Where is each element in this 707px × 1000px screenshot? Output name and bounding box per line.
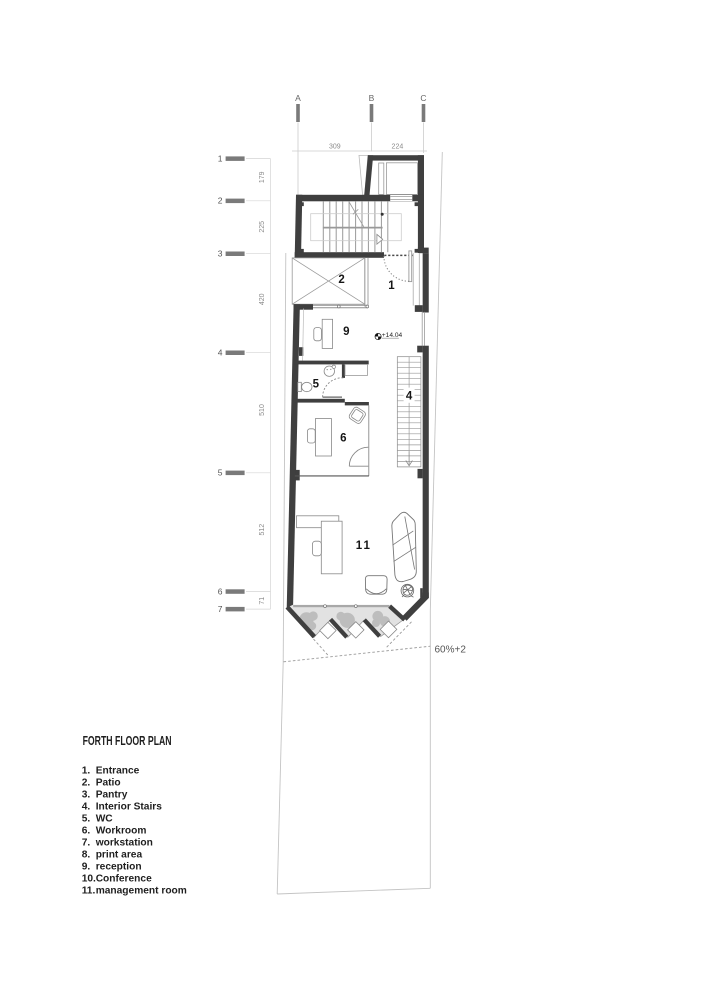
svg-text:71: 71: [259, 597, 266, 605]
svg-text:Workroom: Workroom: [96, 826, 147, 837]
svg-text:225: 225: [259, 221, 266, 233]
svg-text:179: 179: [259, 171, 266, 183]
svg-text:7.: 7.: [82, 838, 91, 849]
svg-text:Interior Stairs: Interior Stairs: [96, 801, 163, 812]
svg-text:Entrance: Entrance: [96, 765, 140, 776]
svg-text:WC: WC: [96, 814, 114, 825]
svg-text:print area: print area: [96, 850, 143, 861]
svg-text:workstation: workstation: [95, 838, 153, 849]
svg-text:8.: 8.: [82, 850, 91, 861]
svg-text:309: 309: [329, 144, 341, 151]
svg-text:512: 512: [259, 524, 266, 536]
svg-text:420: 420: [259, 293, 266, 305]
svg-text:3: 3: [218, 249, 223, 259]
svg-text:9: 9: [343, 326, 349, 338]
svg-text:2: 2: [218, 196, 223, 206]
svg-text:5: 5: [313, 379, 320, 391]
svg-text:FORTH FLOOR PLAN: FORTH FLOOR PLAN: [83, 733, 172, 748]
svg-text:10.: 10.: [82, 874, 96, 885]
svg-text:1: 1: [218, 153, 223, 163]
svg-text:4: 4: [218, 348, 223, 358]
svg-text:Patio: Patio: [96, 777, 121, 788]
svg-text:4.: 4.: [82, 801, 91, 812]
svg-text:Pantry: Pantry: [96, 789, 128, 800]
svg-text:9.: 9.: [82, 862, 91, 873]
svg-text:3.: 3.: [82, 789, 91, 800]
svg-text:B: B: [369, 93, 375, 103]
svg-text:C: C: [420, 93, 426, 103]
svg-text:224: 224: [392, 144, 404, 151]
svg-text:7: 7: [218, 604, 223, 614]
svg-text:reception: reception: [96, 862, 142, 873]
svg-text:A: A: [295, 93, 301, 103]
svg-text:4: 4: [406, 391, 413, 403]
svg-text:management room: management room: [96, 886, 187, 897]
svg-text:5: 5: [218, 468, 223, 478]
svg-text:6: 6: [218, 586, 223, 596]
svg-text:6: 6: [340, 433, 346, 445]
svg-text:1: 1: [388, 280, 395, 292]
svg-text:2.: 2.: [82, 777, 91, 788]
svg-text:1.: 1.: [82, 765, 91, 776]
svg-text:Conference: Conference: [96, 874, 152, 885]
svg-text:6.: 6.: [82, 826, 91, 837]
svg-text:11.: 11.: [82, 886, 96, 897]
svg-text:2: 2: [338, 274, 344, 286]
svg-text:510: 510: [259, 404, 266, 416]
svg-text:11: 11: [356, 540, 372, 552]
svg-text:60%+2: 60%+2: [435, 645, 467, 656]
svg-text:5.: 5.: [82, 814, 91, 825]
